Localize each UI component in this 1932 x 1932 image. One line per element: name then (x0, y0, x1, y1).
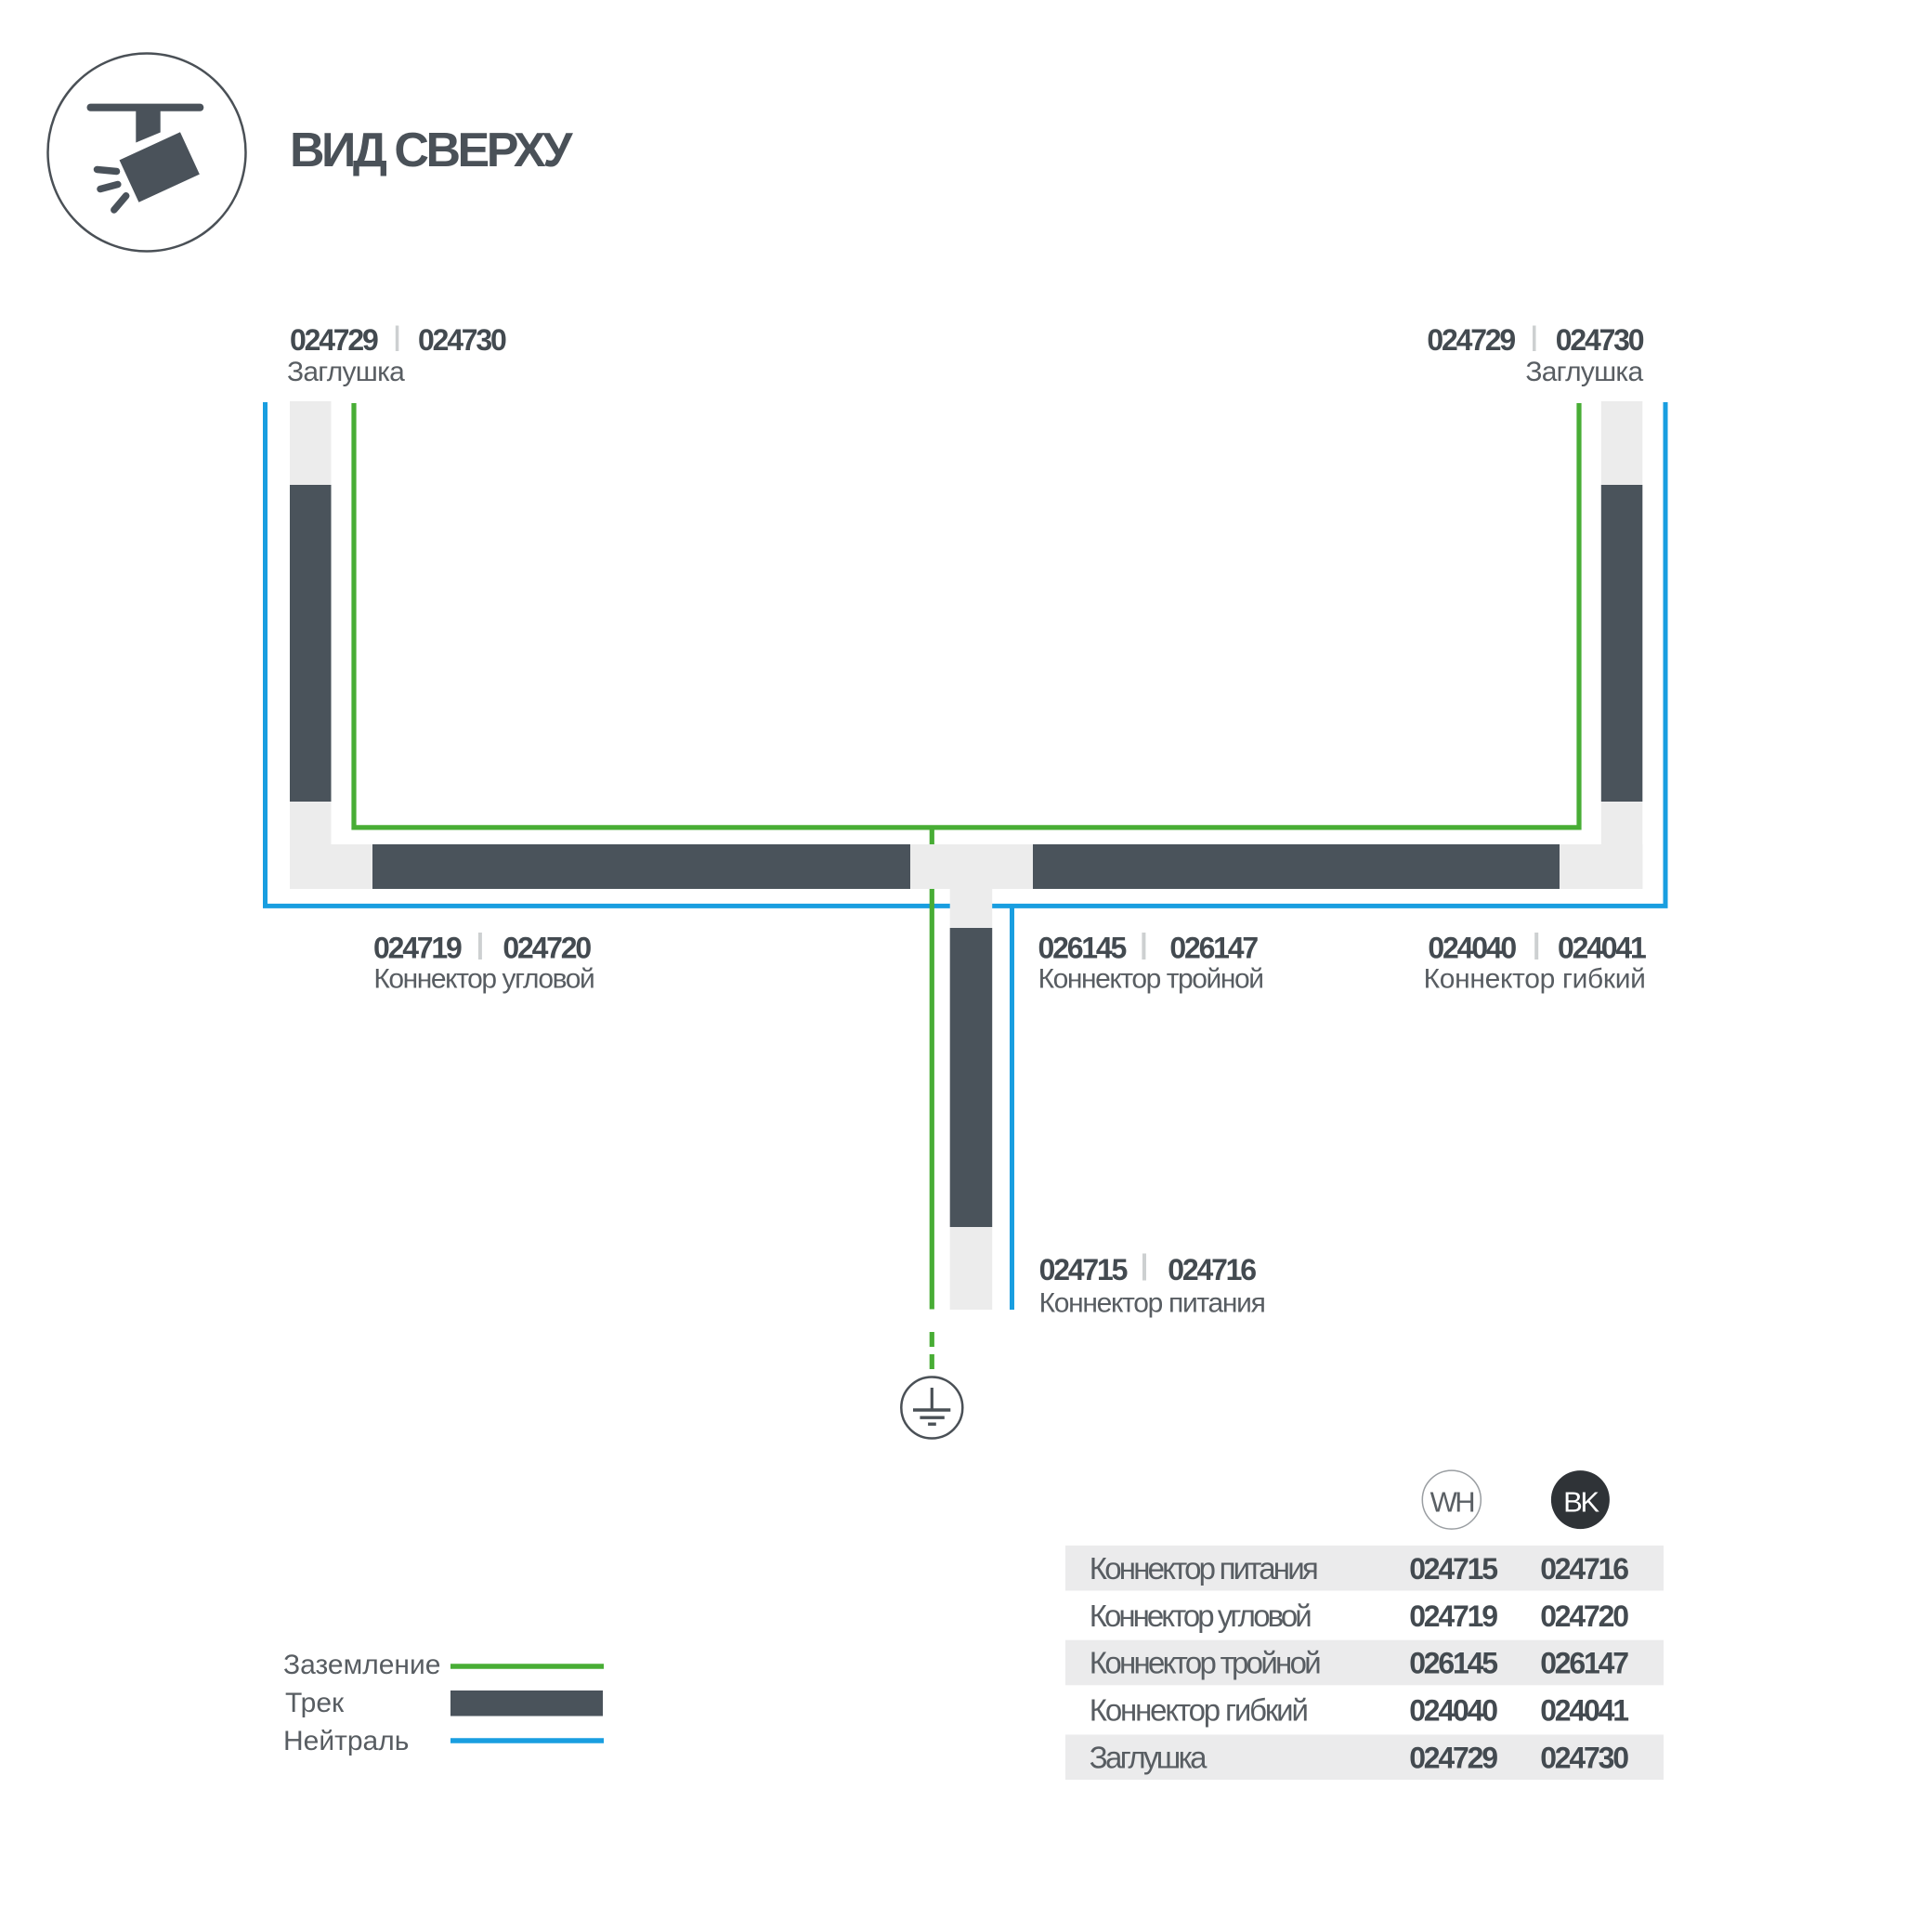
svg-text:024729: 024729 (290, 323, 378, 357)
svg-text:Коннектор питания: Коннектор питания (1039, 1288, 1265, 1319)
svg-text:024720: 024720 (1540, 1599, 1628, 1633)
svg-text:024716: 024716 (1168, 1253, 1256, 1286)
svg-text:024729: 024729 (1409, 1742, 1497, 1775)
svg-text:026145: 026145 (1409, 1647, 1497, 1680)
svg-text:Нейтраль: Нейтраль (283, 1726, 409, 1756)
svg-text:Трек: Трек (285, 1688, 345, 1718)
svg-text:Коннектор гибкий: Коннектор гибкий (1424, 964, 1646, 995)
svg-text:Коннектор угловой: Коннектор угловой (373, 964, 594, 995)
svg-text:026147: 026147 (1540, 1647, 1628, 1680)
svg-text:026145: 026145 (1038, 932, 1127, 965)
svg-text:026147: 026147 (1169, 932, 1258, 965)
svg-text:024730: 024730 (1556, 323, 1644, 357)
svg-text:024040: 024040 (1409, 1694, 1497, 1728)
svg-text:Коннектор гибкий: Коннектор гибкий (1090, 1693, 1308, 1728)
svg-text:024716: 024716 (1540, 1552, 1628, 1586)
svg-text:Заглушка: Заглушка (1090, 1741, 1207, 1775)
svg-text:Коннектор угловой: Коннектор угловой (1090, 1599, 1311, 1633)
svg-text:BK: BK (1563, 1486, 1599, 1519)
svg-text:024730: 024730 (1540, 1742, 1628, 1775)
svg-text:WH: WH (1430, 1486, 1474, 1519)
svg-text:024040: 024040 (1428, 932, 1516, 965)
svg-text:Коннектор тройной: Коннектор тройной (1038, 964, 1263, 995)
svg-text:024719: 024719 (1409, 1599, 1497, 1633)
svg-text:Коннектор тройной: Коннектор тройной (1090, 1646, 1320, 1680)
svg-text:024041: 024041 (1540, 1694, 1628, 1728)
svg-text:024719: 024719 (373, 932, 462, 965)
svg-text:Коннектор питания: Коннектор питания (1090, 1551, 1317, 1586)
svg-text:024720: 024720 (503, 932, 591, 965)
svg-text:024730: 024730 (418, 323, 506, 357)
svg-text:024729: 024729 (1427, 323, 1515, 357)
svg-text:024715: 024715 (1409, 1552, 1497, 1586)
svg-text:Заземление: Заземление (283, 1650, 440, 1680)
svg-text:024041: 024041 (1558, 932, 1646, 965)
svg-text:Заглушка: Заглушка (1525, 357, 1643, 387)
svg-text:ВИД СВЕРХУ: ВИД СВЕРХУ (290, 124, 573, 177)
svg-text:024715: 024715 (1039, 1253, 1128, 1286)
svg-text:Заглушка: Заглушка (287, 357, 405, 387)
